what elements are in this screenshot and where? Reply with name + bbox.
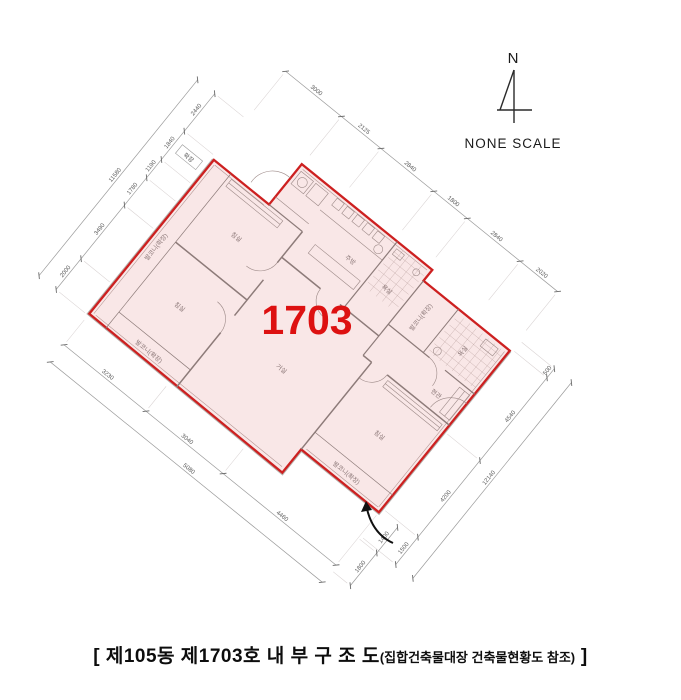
north-label: N	[508, 50, 519, 67]
extension-callout: 확장	[175, 145, 202, 170]
north-indicator: N NONE SCALE	[464, 50, 561, 151]
unit-number-label: 1703	[261, 297, 352, 343]
scale-label: NONE SCALE	[464, 136, 561, 151]
caption-bracket-open: [	[93, 646, 106, 667]
dim-right-1: 500	[542, 365, 553, 377]
caption-note: (집합건축물대장 건축물현황도 참조)	[380, 650, 575, 665]
floor-plan-document: 침실 침실 침실 거실 주방 현관 욕실 욕실 발코니(확장) 발코니(확장) …	[0, 0, 681, 700]
drawing-caption: [ 제105동 제1703호 내 부 구 조 도(집합건축물대장 건축물현황도 …	[0, 641, 681, 668]
floor-plan-canvas: 침실 침실 침실 거실 주방 현관 욕실 욕실 발코니(확장) 발코니(확장) …	[0, 0, 681, 700]
north-arrow-icon	[497, 70, 532, 123]
caption-bracket-close: ]	[575, 646, 588, 667]
caption-title: 제105동 제1703호 내 부 구 조 도	[106, 646, 380, 667]
